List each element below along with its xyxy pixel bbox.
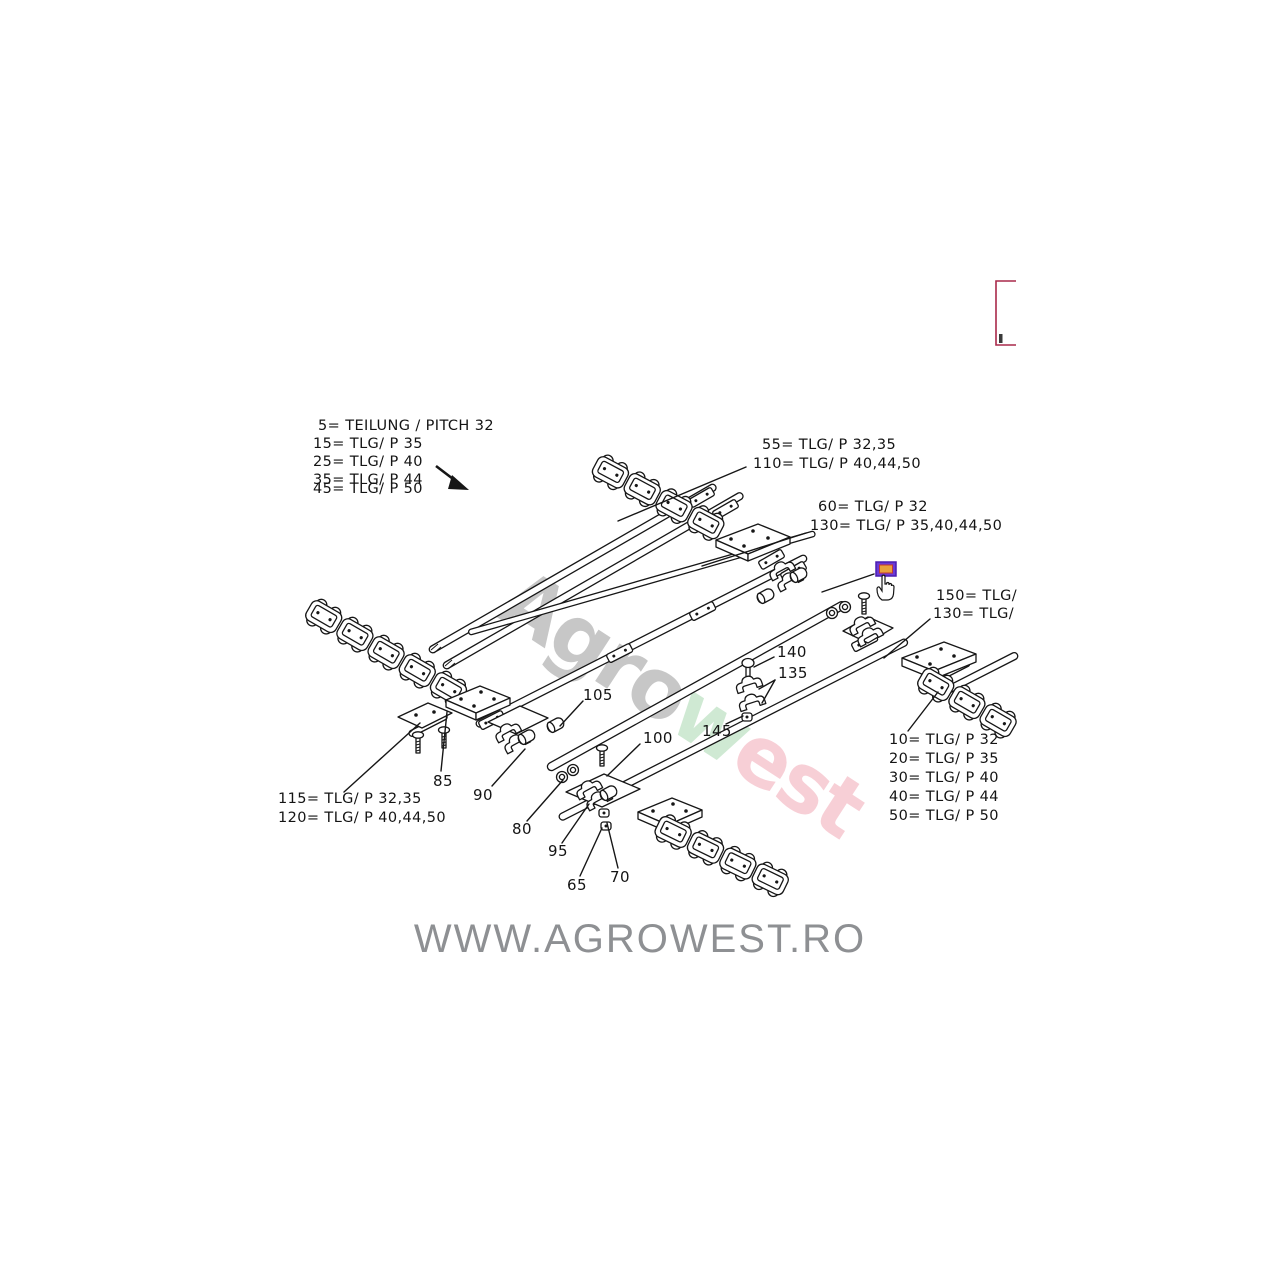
legend-line: 25= TLG/ P 40 <box>313 454 423 470</box>
website-footer: WWW.AGROWEST.RO <box>414 917 866 961</box>
chain-segment-right <box>902 642 1020 742</box>
legend-line: 5= TEILUNG / PITCH 32 <box>313 418 494 434</box>
part-label-105: 105 <box>583 686 613 704</box>
exploded-parts-diagram: Agrowest <box>0 0 1280 1280</box>
corner-frame <box>996 281 1016 345</box>
legend-bottom-right: 10= TLG/ P 32 20= TLG/ P 35 30= TLG/ P 4… <box>889 732 999 824</box>
part-label-145: 145 <box>702 722 732 740</box>
part-label-100: 100 <box>643 729 673 747</box>
callout-110: 110= TLG/ P 40,44,50 <box>753 456 921 472</box>
callout-120: 120= TLG/ P 40,44,50 <box>278 810 446 826</box>
hotspot-thumbnail <box>880 565 893 573</box>
direction-arrow <box>436 466 469 490</box>
parts-diagram-page: Agrowest <box>0 0 1280 1280</box>
link-hotspot[interactable] <box>876 562 896 600</box>
part-label-135: 135 <box>778 664 808 682</box>
callout-55: 55= TLG/ P 32,35 <box>762 437 896 453</box>
legend-line: 15= TLG/ P 35 <box>313 436 423 452</box>
legend-line: 20= TLG/ P 35 <box>889 751 999 767</box>
legend-line: 30= TLG/ P 40 <box>889 770 999 786</box>
callout-115: 115= TLG/ P 32,35 <box>278 791 422 807</box>
legend-line: 10= TLG/ P 32 <box>889 732 999 748</box>
bushing-105 <box>545 716 565 734</box>
part-label-85: 85 <box>433 772 453 790</box>
callout-130b: 130= TLG/ <box>933 606 1014 622</box>
clamp-assembly-right <box>827 593 894 647</box>
callout-60-130: 60= TLG/ P 32 130= TLG/ P 35,40,44,50 <box>810 499 1002 534</box>
callout-150: 150= TLG/ <box>936 588 1017 604</box>
legend-line: 40= TLG/ P 44 <box>889 789 999 805</box>
part-label-65: 65 <box>567 876 587 894</box>
callout-150-130: 150= TLG/ 130= TLG/ <box>933 588 1017 622</box>
part-label-80: 80 <box>512 820 532 838</box>
part-label-70: 70 <box>610 868 630 886</box>
part-label-95: 95 <box>548 842 568 860</box>
callout-60: 60= TLG/ P 32 <box>818 499 928 515</box>
callout-55-110: 55= TLG/ P 32,35 110= TLG/ P 40,44,50 <box>753 437 921 472</box>
part-label-90: 90 <box>473 786 493 804</box>
legend-line: 45= TLG/ P 50 <box>313 481 423 497</box>
legend-line: 50= TLG/ P 50 <box>889 808 999 824</box>
callout-115-120: 115= TLG/ P 32,35 120= TLG/ P 40,44,50 <box>278 791 446 826</box>
legend-top-left: 5= TEILUNG / PITCH 32 15= TLG/ P 35 25= … <box>313 418 494 497</box>
callout-130a: 130= TLG/ P 35,40,44,50 <box>810 518 1002 534</box>
chain-segment-left <box>302 596 510 720</box>
part-label-140: 140 <box>777 643 807 661</box>
hand-cursor-icon <box>877 575 894 600</box>
